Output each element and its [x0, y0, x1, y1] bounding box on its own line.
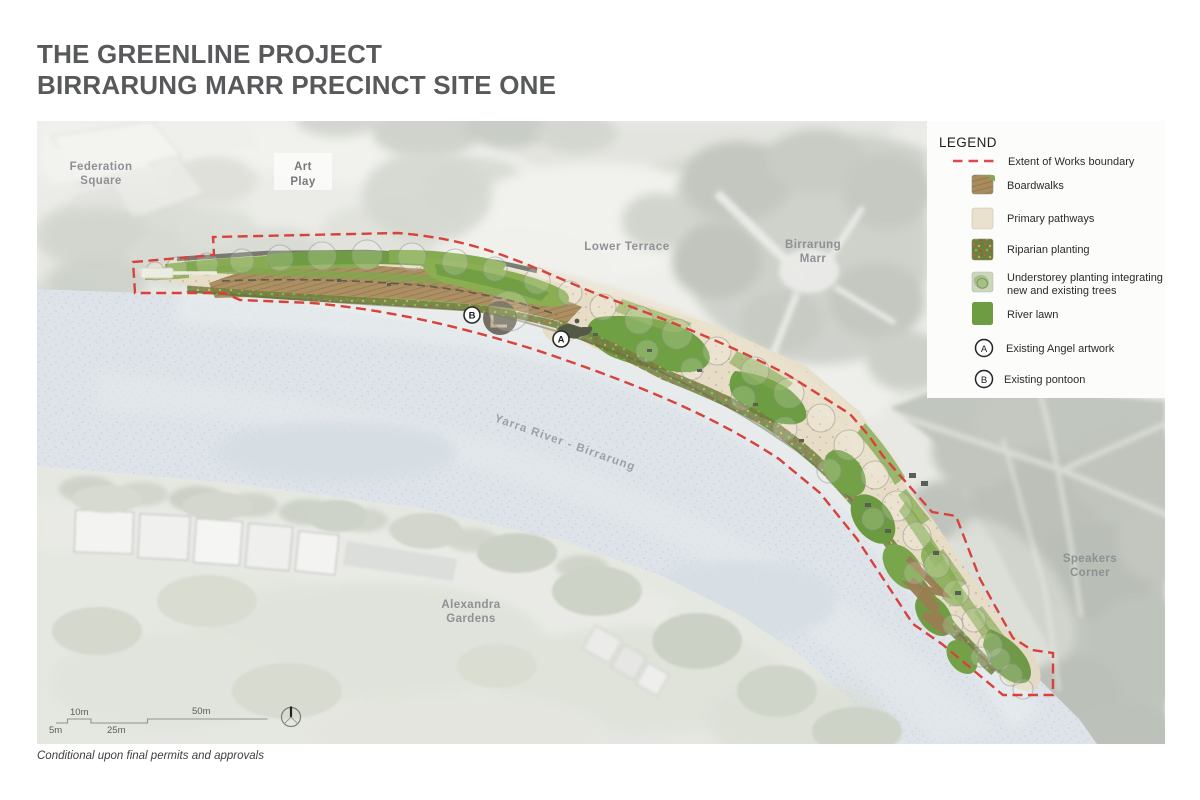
svg-text:Speakers: Speakers — [1063, 553, 1117, 565]
svg-text:Marr: Marr — [800, 253, 827, 265]
svg-text:5m: 5m — [49, 725, 62, 736]
svg-text:Square: Square — [80, 175, 121, 187]
svg-text:Primary pathways: Primary pathways — [1007, 213, 1095, 225]
svg-text:A: A — [558, 335, 565, 346]
svg-text:50m: 50m — [192, 706, 211, 717]
svg-text:Corner: Corner — [1070, 567, 1110, 579]
svg-text:Boardwalks: Boardwalks — [1007, 180, 1064, 192]
svg-text:25m: 25m — [107, 725, 126, 736]
svg-text:B: B — [469, 311, 476, 322]
svg-text:Riparian planting: Riparian planting — [1007, 244, 1090, 256]
svg-text:Art: Art — [294, 161, 312, 173]
svg-text:Existing pontoon: Existing pontoon — [1004, 374, 1085, 386]
svg-text:Gardens: Gardens — [446, 613, 495, 625]
svg-text:new and existing trees: new and existing trees — [1007, 285, 1117, 297]
svg-text:Extent of Works boundary: Extent of Works boundary — [1008, 156, 1135, 168]
svg-text:Federation: Federation — [70, 161, 133, 173]
svg-text:LEGEND: LEGEND — [939, 135, 997, 150]
svg-text:10m: 10m — [70, 707, 89, 718]
svg-text:Understorey planting integrati: Understorey planting integrating — [1007, 272, 1163, 284]
svg-text:Existing Angel artwork: Existing Angel artwork — [1006, 343, 1115, 355]
svg-text:Alexandra: Alexandra — [441, 599, 500, 611]
svg-text:A: A — [981, 344, 988, 355]
svg-text:B: B — [981, 375, 987, 386]
svg-text:Play: Play — [290, 176, 315, 188]
svg-text:Birrarung: Birrarung — [785, 239, 841, 251]
svg-text:Lower Terrace: Lower Terrace — [584, 241, 670, 253]
svg-text:River lawn: River lawn — [1007, 309, 1058, 321]
